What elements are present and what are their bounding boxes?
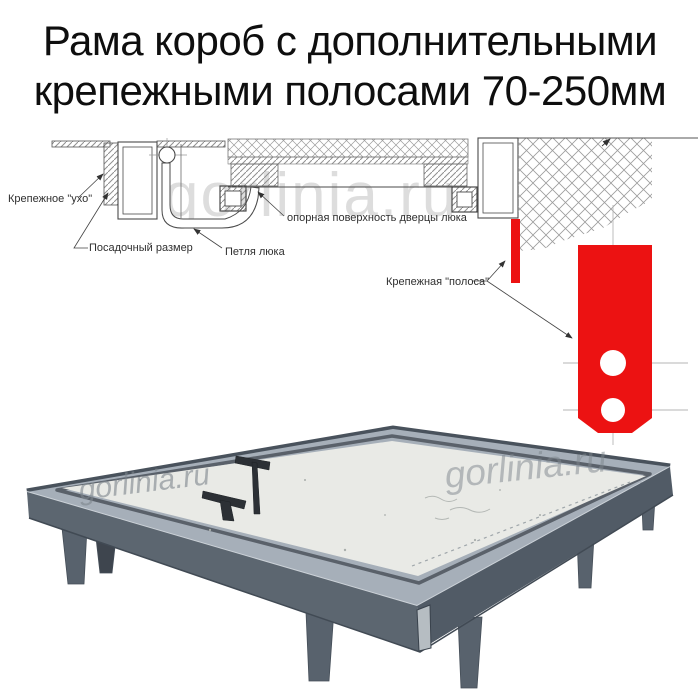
- door-gkl-crosshatch: [228, 139, 468, 157]
- strip-hole-top: [600, 350, 626, 376]
- mounting-leg: [458, 617, 482, 688]
- title-line-2: крепежными полосами 70-250мм: [0, 66, 700, 116]
- mounting-strip-detail: [563, 205, 688, 445]
- label-ear: Крепежное "ухо": [8, 193, 92, 205]
- door-angle-profile-right: [452, 187, 477, 212]
- product-photo: gorlinia.ru gorlinia.ru: [0, 420, 700, 700]
- mounting-strip-red: [511, 219, 520, 283]
- product-title: Рама короб с дополнительными крепежными …: [0, 16, 700, 116]
- door-end-block-left: [231, 164, 278, 186]
- label-hinge: Петля люка: [225, 246, 286, 258]
- product-card: Рама короб с дополнительными крепежными …: [0, 0, 700, 700]
- frame-profile-left: [118, 142, 157, 219]
- door-end-block-right: [424, 164, 467, 186]
- hinge-pin-circle: [159, 147, 175, 163]
- title-line-1: Рама короб с дополнительными: [0, 16, 700, 66]
- label-support-surface: опорная поверхность дверцы люка: [287, 212, 468, 224]
- frame-corner-notch: [417, 605, 431, 651]
- wall-crosshatch: [518, 138, 698, 251]
- label-seat-size: Посадочный размер: [89, 242, 193, 254]
- label-mount-strip: Крепежная "полоса": [386, 276, 489, 288]
- technical-diagram: gorlinia.ru: [0, 118, 700, 448]
- strip-hole-bottom: [601, 398, 625, 422]
- frame-profile-right: [478, 138, 518, 218]
- door-sheet-hatch: [228, 157, 468, 164]
- door-angle-profile-left: [220, 186, 246, 211]
